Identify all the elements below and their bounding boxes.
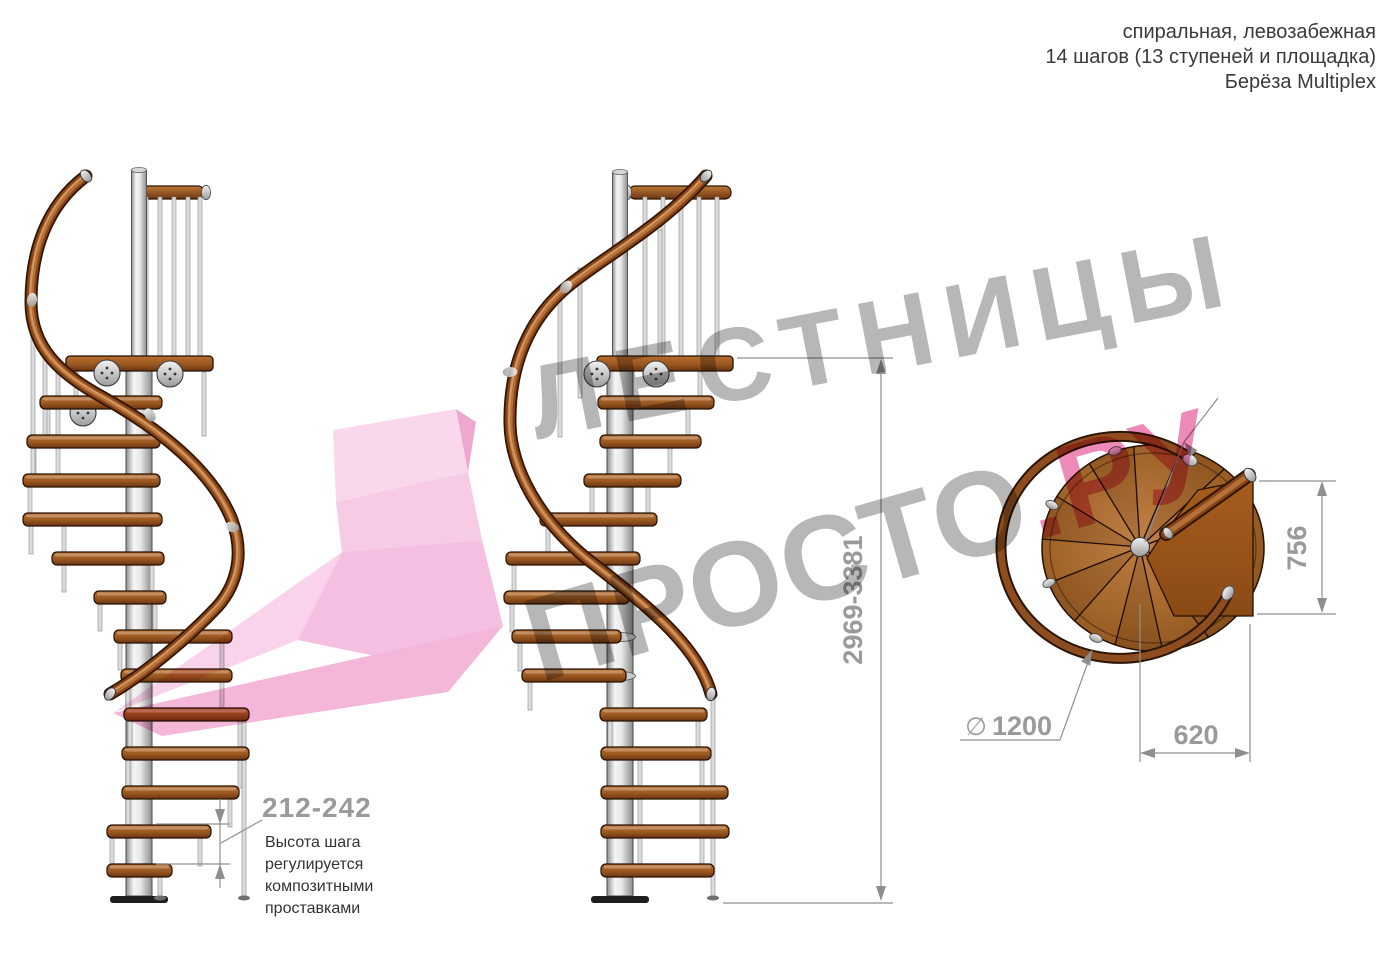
step-highlight (604, 866, 711, 869)
step-highlight (125, 749, 246, 752)
flange-disc (643, 361, 669, 387)
dim-diameter-value: 1200 (992, 711, 1052, 741)
flange-bolt (101, 372, 104, 375)
step-highlight (515, 632, 618, 635)
plan-view (1001, 436, 1264, 658)
spec-line-material: Берёза Multiplex (1045, 70, 1376, 95)
dimension-arrow (215, 864, 225, 879)
flange-bolt (650, 373, 653, 376)
dimension-arrow (1235, 748, 1250, 758)
dimension-line (1184, 398, 1218, 442)
dimension-line (1060, 651, 1092, 740)
baluster (658, 230, 662, 372)
baluster (186, 197, 190, 356)
pole-top-cap (613, 169, 628, 174)
landing-platform (66, 356, 213, 371)
base-plate (591, 896, 649, 903)
baluster (698, 372, 702, 397)
side-view-left (23, 167, 250, 903)
dimension-arrow (215, 809, 225, 824)
baluster (643, 197, 647, 356)
drawing-canvas: 2969-3381 756 620 ∅ 1200 ЛЕСТНИЦЫ ПРОСТО… (0, 0, 1400, 956)
flange-bolt (660, 373, 663, 376)
step-highlight (30, 437, 157, 440)
step-highlight (604, 749, 708, 752)
step-highlight (601, 398, 711, 401)
step-highlight (110, 866, 169, 869)
baluster (158, 197, 162, 356)
flange-bolt (111, 372, 114, 375)
dimension-arrow (1317, 598, 1327, 613)
dimension-arrow (1317, 481, 1327, 496)
center-pole-hub (1131, 538, 1150, 557)
spec-header: спиральная, левозабежная 14 шагов (13 ст… (1045, 20, 1376, 95)
flange-bolt (164, 373, 167, 376)
pole-upper (613, 172, 628, 356)
baluster (578, 268, 582, 398)
dim-total-height: 2969-3381 (838, 535, 868, 664)
baluster-foot (238, 896, 250, 901)
flange-bolt (655, 368, 658, 371)
baluster (56, 362, 60, 476)
dimension-arrow (876, 886, 886, 901)
step-highlight (543, 515, 654, 518)
pole-upper (132, 170, 147, 356)
note-line: проставками (265, 898, 373, 920)
flange-bolt (169, 368, 172, 371)
step-highlight (127, 710, 246, 713)
flange-bolt (596, 368, 599, 371)
step-highlight (26, 476, 157, 479)
flange-disc (157, 361, 183, 387)
dimension-arrow (876, 359, 886, 374)
step-highlight (117, 632, 229, 635)
step-highlight (26, 515, 159, 518)
flange-bolt (106, 367, 109, 370)
flange-bolt (82, 417, 85, 420)
step-highlight (110, 827, 208, 830)
step-highlight (507, 593, 626, 596)
flange-bolt (174, 373, 177, 376)
flange-bolt (106, 377, 109, 380)
baluster (172, 197, 176, 356)
flange-bolt (591, 373, 594, 376)
note-line: Высота шага (265, 832, 373, 854)
baluster (43, 350, 47, 437)
step-highlight (125, 788, 236, 791)
note-line: композитными (265, 876, 373, 898)
flange-bolt (77, 412, 80, 415)
baluster (558, 300, 562, 437)
baluster (202, 372, 206, 436)
dimension-arrow (1140, 748, 1155, 758)
baluster (198, 197, 202, 356)
flange-bolt (596, 378, 599, 381)
baluster-foot (707, 896, 719, 901)
rail-end-cap (201, 185, 210, 199)
baluster (679, 197, 683, 356)
baluster (697, 197, 701, 356)
flange-bolt (655, 378, 658, 381)
step-highlight (97, 593, 163, 596)
side-view-front (502, 168, 733, 903)
dim-landing-width: 620 (1173, 720, 1218, 750)
flange-bolt (87, 412, 90, 415)
flange-bolt (601, 373, 604, 376)
spec-line-steps: 14 шагов (13 ступеней и площадка) (1045, 45, 1376, 70)
staircase-drawing: 2969-3381 756 620 ∅ 1200 (0, 0, 1400, 956)
step-highlight (525, 671, 623, 674)
baluster-foot (154, 896, 166, 901)
baluster (715, 197, 719, 356)
flange-bolt (169, 378, 172, 381)
dim-step-height: 212-242 (262, 792, 372, 824)
step-highlight (587, 476, 678, 479)
baluster (242, 712, 246, 896)
flange-disc (584, 361, 610, 387)
dim-landing-depth: 756 (1282, 525, 1312, 570)
pole-top-cap (132, 167, 147, 172)
step-highlight (604, 788, 725, 791)
note-line: регулируется (265, 854, 373, 876)
step-highlight (604, 827, 726, 830)
step-height-note: Высота шага регулируется композитными пр… (265, 832, 373, 920)
step-highlight (603, 710, 704, 713)
step-highlight (603, 437, 698, 440)
spec-line-type: спиральная, левозабежная (1045, 20, 1376, 45)
flange-disc (94, 360, 120, 386)
diameter-symbol: ∅ (965, 713, 987, 741)
step-highlight (55, 554, 161, 557)
